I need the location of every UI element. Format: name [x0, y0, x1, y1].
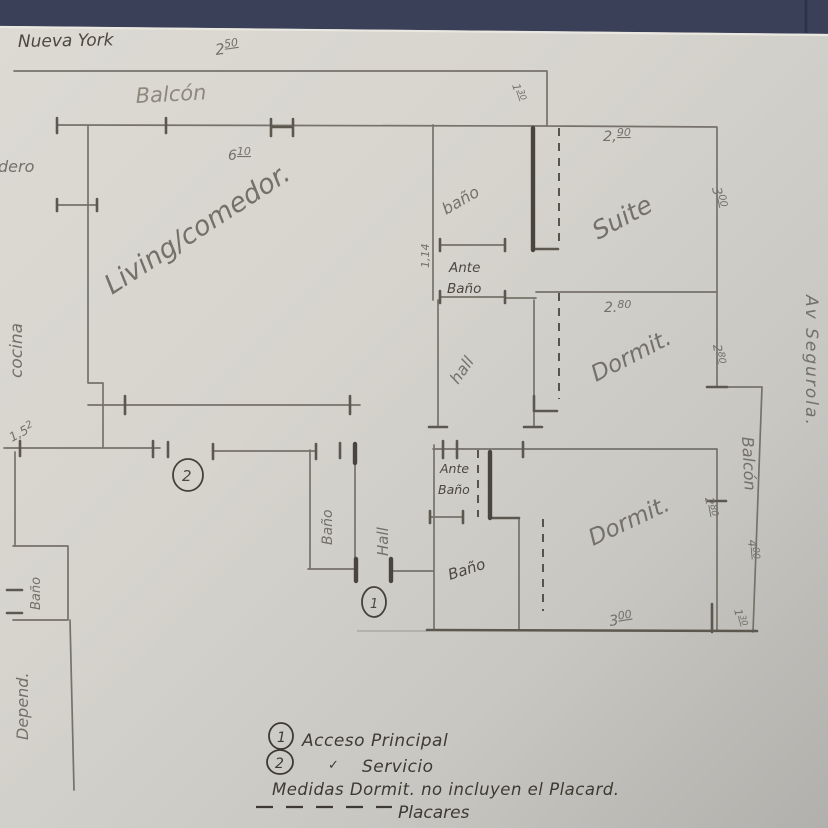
measure-antebath-width: 1,14: [419, 244, 432, 269]
room-label-balcony-top: Balcón: [135, 80, 207, 108]
legend-item1-text: Acceso Principal: [301, 731, 448, 751]
floor-plan-sketch: Nueva York Av Segurola. Balcón Living/co…: [0, 0, 828, 828]
room-label-antebath-low-line1: Ante: [439, 461, 469, 476]
legend-item2-check: ✓: [328, 758, 339, 773]
measure-main: 2.: [604, 300, 617, 316]
measure-sup: 80: [707, 503, 720, 517]
room-label-hall-bottom: Hall: [374, 526, 392, 556]
measure-sup: 80: [715, 351, 728, 365]
room-label-antebath-low-line2: Baño: [438, 482, 470, 497]
measure-sup: 50: [223, 36, 239, 51]
room-label-antebath-top-line1: Ante: [448, 260, 480, 276]
marker-service-number: 2: [182, 467, 192, 485]
legend-note: Medidas Dormit. no incluyen el Placard.: [272, 780, 619, 799]
room-label-bath-service: Baño: [29, 577, 44, 610]
room-label-bath-mid: Baño: [320, 509, 336, 545]
room-label-balcony-right: Balcón: [738, 436, 760, 491]
measure-main: 1,14: [419, 244, 432, 269]
legend-item2-number: 2: [275, 756, 284, 772]
street-label-top: Nueva York: [18, 30, 115, 52]
legend-placard-label: Placares: [398, 803, 470, 823]
measure-main: 6: [228, 148, 237, 164]
measure-sup: 80: [617, 298, 631, 311]
floor-plan-photo: Nueva York Av Segurola. Balcón Living/co…: [0, 0, 828, 828]
measure-main: 2,: [603, 129, 617, 145]
measure-sup: 00: [750, 547, 762, 560]
room-label-depend: Depend.: [13, 672, 32, 740]
room-label-lavadero: Lavadero: [0, 157, 35, 176]
room-label-antebath-top-line2: Baño: [447, 281, 481, 297]
marker-main-access-number: 1: [370, 597, 378, 612]
legend-item2-text: Servicio: [362, 757, 434, 777]
measure-sup: 90: [617, 126, 631, 139]
measure-sup: 00: [617, 608, 633, 623]
measure-sup: 10: [237, 145, 251, 158]
room-label-cocina: cocina: [7, 323, 27, 378]
legend-item1-number: 1: [277, 730, 286, 746]
street-label-right: Av Segurola.: [801, 294, 821, 427]
